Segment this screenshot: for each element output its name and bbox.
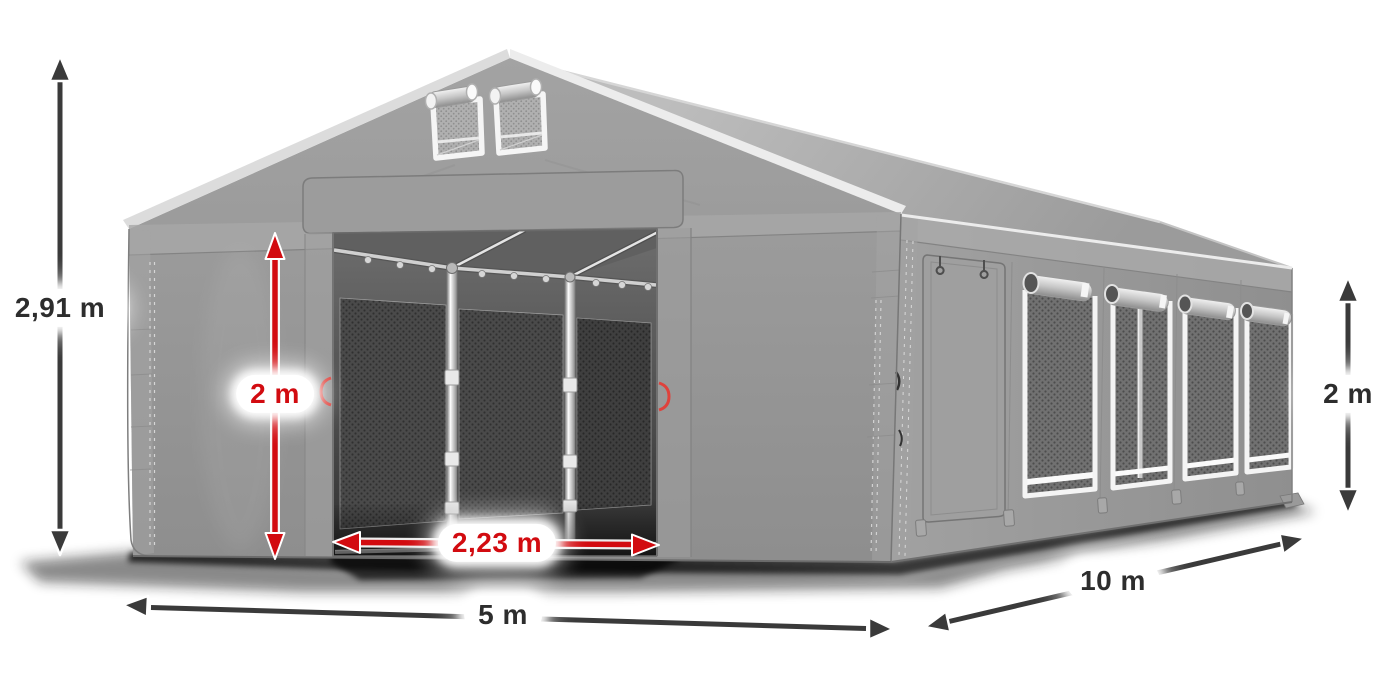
tent-illustration <box>0 0 1400 700</box>
side-window-4 <box>1241 303 1293 472</box>
gable-vent-left <box>426 84 483 158</box>
dimension-label-wall-height: 2 m <box>1309 375 1387 413</box>
dimension-label-front-width: 5 m <box>464 596 542 634</box>
tent-dimension-diagram: 2,91 m 2 m 2,23 m 5 m 10 m 2 m <box>0 0 1400 700</box>
entrance-interior <box>333 229 660 556</box>
tent-front <box>123 49 906 562</box>
tent-side-wall <box>891 214 1304 562</box>
dimension-label-total-height: 2,91 m <box>1 289 119 327</box>
dimension-label-entrance-height: 2 m <box>236 375 314 413</box>
interior-mesh-panel <box>340 298 446 529</box>
side-window-3 <box>1179 296 1237 480</box>
dimension-label-side-length: 10 m <box>1066 562 1160 600</box>
dimension-label-entrance-width: 2,23 m <box>438 524 556 562</box>
interior-mesh-panel <box>459 309 563 519</box>
side-window-1 <box>1024 273 1096 496</box>
entrance-lintel <box>303 170 683 233</box>
gable-vent-right <box>490 79 546 153</box>
side-window-2 <box>1105 285 1170 488</box>
side-door <box>923 255 1005 522</box>
